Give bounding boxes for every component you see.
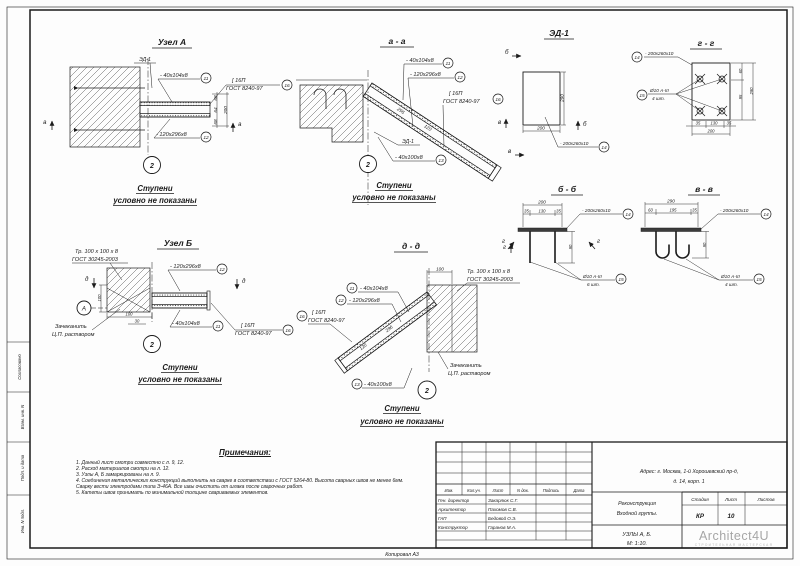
rebar-qty: 4 шт. (725, 282, 738, 287)
callout-14-num: 14 (763, 212, 769, 218)
callout-2-num: 2 (149, 342, 154, 349)
callout-14-num: 14 (634, 55, 640, 61)
channel-gost-label: ГОСТ 8240-97 (226, 86, 263, 92)
ed1-label: ЭД-1 (402, 139, 414, 145)
caption-steps-1: Ступени (137, 184, 173, 193)
callout-16-num: 16 (284, 83, 290, 89)
section-g-right: г (597, 238, 600, 245)
section-a-left: а (43, 119, 47, 126)
callout-12-num: 12 (203, 135, 209, 141)
panel-title: г - г (698, 38, 715, 48)
callout-2-num: 2 (424, 388, 429, 395)
callout-11-num: 11 (216, 324, 221, 330)
channel-gost-label: ГОСТ 8240-97 (235, 331, 272, 337)
dim-90: 90 (702, 242, 707, 247)
title-block: Изм. Кол.уч. Лист N док. Подпись Дата Ге… (436, 442, 787, 548)
stamp-sheets-label: Листов (756, 497, 775, 502)
rebar-label: Ø10 А-III (720, 274, 740, 279)
dim-35a: 35 (524, 209, 529, 214)
callout-12-num: 12 (457, 75, 463, 81)
stamp-sheet-label: Лист (724, 497, 737, 502)
notes-block: Примечания: 1. Данный лист смотри совмес… (76, 448, 414, 496)
dim-35b: 35 (727, 121, 732, 126)
stamp-header-kol: Кол.уч. (467, 488, 481, 493)
channel-label: [ 16П (231, 78, 246, 84)
callout-14-num: 14 (601, 145, 607, 151)
stamp-project-2: Входной группы. (617, 510, 657, 517)
stamp-name-0: Закарлюк С.Г. (488, 498, 518, 503)
stamp-header-izm: Изм. (445, 488, 454, 493)
panel-node-a: Узел А ЭД-1 - 40х104х8 11 [ 16П ГОСТ 824… (43, 37, 292, 206)
caption-steps-1: Ступени (162, 363, 198, 372)
dim-35b: 35 (556, 209, 561, 214)
dim-200: 200 (223, 106, 228, 115)
note-item-5: 5. Катеты швов принимать по минимальной … (76, 491, 414, 497)
section-d-left: д (85, 276, 89, 283)
stamp-role-0: Ген. директор (438, 498, 470, 503)
dim-90: 90 (568, 244, 573, 249)
dim-195: 195 (670, 208, 678, 213)
dim-60: 60 (648, 208, 653, 213)
stamp-project-1: Реконструкция (618, 501, 656, 507)
stamp-role-1: Архитектор (437, 507, 466, 512)
dim-35: 35 (692, 208, 697, 213)
plate-200x260-label: - 200х260х10 (582, 208, 611, 213)
dim-130: 130 (539, 209, 547, 214)
callout-11-num: 11 (204, 76, 209, 82)
plate-40x104-label: - 40х104х8 (360, 286, 389, 292)
dim-290: 290 (749, 87, 754, 96)
panel-title: Узел А (158, 37, 186, 47)
dim-200: 200 (537, 200, 546, 205)
panel-a-a: а - а - 40х104х8 11 - 120х296х8 12 [ 16П… (296, 36, 503, 205)
dim-290: 290 (666, 199, 675, 204)
stamp-role-3: Конструктор (438, 525, 468, 530)
dim-30: 30 (135, 319, 140, 324)
dim-290: 290 (560, 94, 565, 103)
section-v-bottom: в (508, 148, 512, 155)
dim-100-bottom: 100 (126, 312, 134, 317)
caulk-label-2: Ц.П. раствором (52, 332, 95, 338)
margin-vzam: Взам. инв. N (20, 404, 25, 429)
panel-title: в - в (695, 184, 713, 194)
panel-v-v: в - в 290 60 195 35 90 - 200х260х10 14 Ø… (641, 184, 771, 287)
plate-120x296-label: - 120х296х8 (410, 72, 442, 78)
stamp-name-1: Пахомов С.В. (488, 507, 517, 512)
tube-label: Тр. 100 х 100 х 8 (75, 249, 119, 255)
caption-steps-2: условно не показаны (359, 417, 444, 426)
stamp-header-ndok: N док. (517, 488, 529, 493)
section-v-left: в (498, 119, 502, 126)
callout-15-num: 15 (756, 277, 762, 283)
stamp-header-data: Дата (572, 488, 585, 493)
panel-title: б - б (558, 184, 577, 194)
caption-steps-1: Ступени (376, 181, 412, 190)
dim-68-top: 68 (213, 95, 218, 101)
panel-g-g: г - г 14 - 200х260х10 15 Ø10 А-III 4 шт.… (632, 38, 756, 136)
section-d-right: д (242, 278, 246, 285)
stamp-role-2: ГАП (438, 516, 447, 521)
callout-16-num: 16 (285, 328, 291, 334)
stamp-stage-label: Стадия (691, 497, 709, 502)
margin-podp: Подп. и дата (20, 454, 25, 481)
channel-label: [ 16П (448, 91, 463, 97)
panel-title: а - а (388, 36, 405, 46)
plate-120x296-label: - 120х296х8 (170, 264, 202, 270)
callout-13-num: 13 (438, 158, 444, 164)
callout-15-num: 15 (639, 93, 645, 99)
dim-100: 100 (436, 267, 444, 272)
callout-2-num: 2 (365, 162, 370, 169)
section-g-mark: г (503, 244, 506, 251)
callout-16-num: 16 (495, 97, 501, 103)
caulk-label-2: Ц.П. раствором (448, 371, 491, 377)
caption-steps-2: условно не показаны (112, 196, 197, 205)
dim-130: 130 (711, 121, 719, 126)
dim-35a: 35 (696, 121, 701, 126)
architect4u-logo-subtitle: СТРОИТЕЛЬНАЯ МАСТЕРСКАЯ (695, 543, 773, 547)
dim-200: 200 (707, 129, 716, 134)
tube-gost-label: ГОСТ 30245-2003 (467, 277, 514, 283)
notes-title: Примечания: (76, 448, 414, 457)
callout-11-num: 11 (350, 286, 355, 292)
plate-40x104-label: - 40х104х8 (172, 321, 201, 327)
copied-label: Копировал А3 (385, 552, 419, 558)
panel-title: ЭД-1 (549, 28, 569, 38)
drawing-sheet: Согласовано Взам. инв. N Подп. и дата Ин… (0, 0, 800, 566)
callout-12-num: 12 (219, 267, 225, 273)
plate-200x260-label: - 200х260х10 (720, 208, 749, 213)
panel-title: Узел Б (164, 238, 192, 248)
panel-ed1: ЭД-1 200 290 - 200х260х10 14 б в б в (498, 28, 609, 155)
stamp-address-1: Адрес: г. Москва, 1-й Хорошевский пр-д, (639, 468, 738, 475)
callout-2-num: 2 (149, 163, 154, 170)
rebar-qty: 4 шт. (652, 96, 665, 101)
callout-14-num: 14 (625, 212, 631, 218)
panel-d-d: д - д г 100 Тр. 100 х 100 х 8 ГОСТ 30245… (297, 241, 520, 427)
plate-120x296-label: - 120х296х8 (349, 298, 381, 304)
rebar-qty: 6 шт. (587, 282, 600, 287)
callout-15-num: 15 (618, 277, 624, 283)
channel-label: [ 16П (311, 310, 326, 316)
dim-68-bot: 68 (213, 119, 218, 125)
plate-40x104-label: - 40х104х8 (160, 73, 189, 79)
plate-200x260-label: - 200х260х10 (645, 51, 674, 56)
caption-steps-2: условно не показаны (137, 375, 222, 384)
callout-16-num: 16 (299, 314, 305, 320)
dim-64: 64 (213, 107, 218, 113)
rebar-label: Ø10 А-III (582, 274, 602, 279)
plate-200x260-label: - 200х260х10 (560, 141, 589, 146)
section-b-right: б (583, 121, 587, 128)
stamp-address-2: д. 14, корп. 1 (673, 479, 704, 485)
stamp-header-list: Лист (492, 488, 504, 493)
caulk-label-1: Зачеканить (55, 324, 87, 330)
stamp-content-2: М: 1:10. (627, 541, 647, 547)
plate-40x100-label: - 40х100х8 (364, 382, 393, 388)
section-b-topleft: б (505, 49, 509, 56)
caulk-label-1: Зачеканить (450, 363, 482, 369)
margin-soglasovano: Согласовано (17, 354, 22, 380)
axis-bubble-a-letter: А (81, 306, 86, 313)
stamp-name-3: Гаранов М.А. (488, 525, 516, 530)
channel-gost-label: ГОСТ 8240-97 (443, 99, 480, 105)
dim-60: 60 (738, 68, 743, 73)
channel-gost-label: ГОСТ 8240-97 (308, 318, 345, 324)
caption-steps-1: Ступени (384, 404, 420, 413)
dim-95: 95 (738, 94, 743, 99)
tube-gost-label: ГОСТ 30245-2003 (72, 257, 119, 263)
plate-40x100-label: - 40х100х8 (395, 155, 424, 161)
callout-13-num: 13 (354, 382, 360, 388)
stamp-content-1: УЗЛЫ А, Б. (621, 532, 651, 538)
channel-label: [ 16П (240, 323, 255, 329)
dim-200: 200 (536, 126, 545, 131)
panel-b-b: б - б 200 35 130 35 90 - 200х260х10 14 Ø… (502, 184, 633, 287)
stamp-stage-value: КР (696, 513, 705, 520)
caption-steps-2: условно не показаны (351, 193, 436, 202)
plate-40x104-label: - 40х104х8 (406, 58, 435, 64)
note-item-4: 4. Соединения металлических конструкций … (76, 479, 414, 491)
tube-label: Тр. 100 х 100 х 8 (467, 269, 511, 275)
callout-11-num: 11 (446, 61, 451, 67)
panel-title: д - д (402, 241, 420, 251)
dim-100-side: 100 (97, 294, 102, 302)
stamp-sheet-value: 10 (728, 513, 735, 520)
ed1-label: ЭД-1 (139, 57, 151, 63)
rebar-label: Ø10 А-III (649, 88, 669, 93)
architect4u-logo: Architect4U (699, 529, 769, 543)
anchor-symbols (695, 74, 727, 116)
stamp-name-2: Бедовой О.Э. (488, 515, 517, 521)
callout-12-num: 12 (338, 298, 344, 304)
stamp-header-podp: Подпись (543, 488, 560, 493)
panel-node-b: Узел Б Тр. 100 х 100 х 8 ГОСТ 30245-2003… (52, 238, 293, 385)
margin-inv: Инв. N подл. (20, 509, 25, 533)
plate-120x296-label: - 120х296х8 (156, 132, 188, 138)
section-a-right: а (238, 121, 242, 128)
